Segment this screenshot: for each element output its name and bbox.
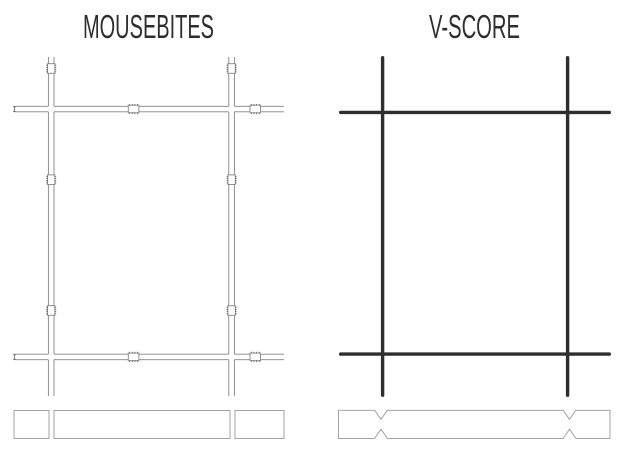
svg-text:V-SCORE: V-SCORE bbox=[429, 8, 520, 45]
svg-text:MOUSEBITES: MOUSEBITES bbox=[83, 8, 214, 45]
